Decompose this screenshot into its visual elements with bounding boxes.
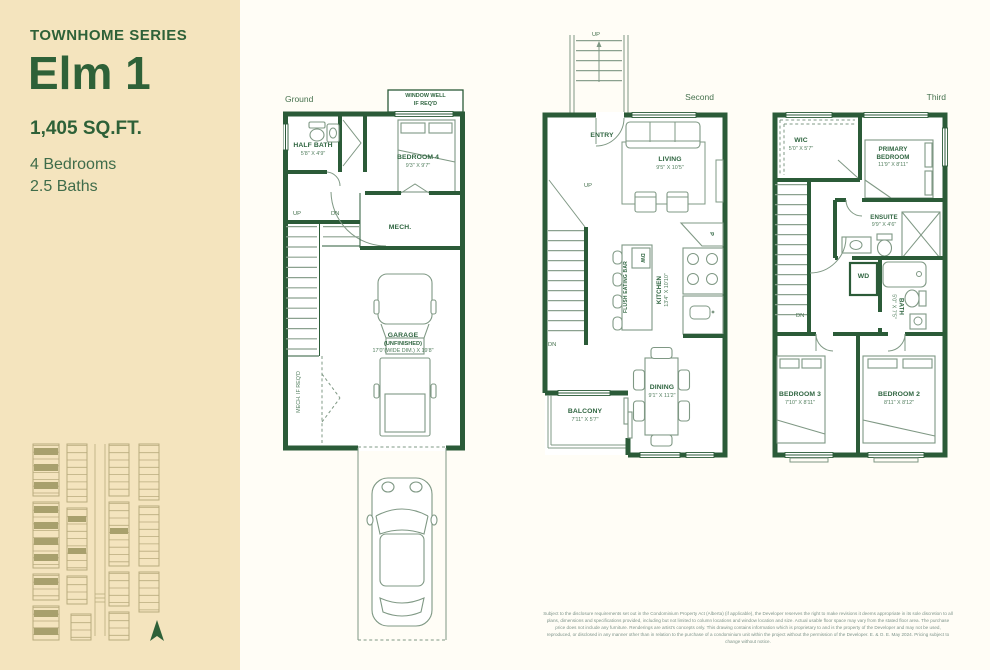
north-arrow-icon xyxy=(150,620,164,641)
room-label-primary-bedroom: PRIMARY BEDROOM 11'9" X 8'11" xyxy=(864,146,922,169)
sink-icon xyxy=(910,314,926,329)
entry-stairs-up-label: UP xyxy=(592,32,600,38)
room-label-half-bath: HALF BATH 5'8" X 4'9" xyxy=(287,142,339,158)
sofa-icon xyxy=(626,122,700,148)
stairs-dn-label: DN xyxy=(548,342,556,348)
room-label-ensuite: ENSUITE 9'9" X 4'6" xyxy=(862,214,906,229)
second-floor-plan: Second UP ENTRY LIVING 9'5" X 10'5" UP D… xyxy=(540,30,740,462)
room-label-wic: WIC 5'0" X 5'7" xyxy=(780,137,822,153)
armchair-icon xyxy=(635,192,656,212)
plan-area: 1,405 SQ.FT. xyxy=(30,118,142,140)
stairs-up-label: UP xyxy=(293,211,301,217)
plan-name: Elm 1 xyxy=(28,46,151,100)
sink-icon xyxy=(327,124,339,142)
mech-if-reqd-note: MECH. IF REQ'D xyxy=(296,352,306,432)
room-label-garage: GARAGE (UNFINISHED) 17'0"(WIDE DIM.) X 1… xyxy=(365,332,441,355)
legal-disclaimer: Subject to the disclosure requirements s… xyxy=(543,610,953,646)
floor-label-second: Second xyxy=(668,92,714,102)
room-label-entry: ENTRY xyxy=(580,132,624,141)
shower-icon xyxy=(902,212,940,258)
stove-icon xyxy=(683,248,723,294)
stairs-dn-label: DN xyxy=(331,211,339,217)
car-icon xyxy=(367,478,437,626)
room-label-balcony: BALCONY 7'11" X 5'7" xyxy=(556,408,614,424)
site-map xyxy=(25,438,165,653)
plan-baths: 2.5 Baths xyxy=(30,178,98,196)
room-label-living: LIVING 9'5" X 10'5" xyxy=(644,156,696,172)
kitchen-sink-icon xyxy=(683,296,723,334)
pantry-label: P xyxy=(706,229,714,239)
eating-bar-label: FLUSH EATING BAR xyxy=(623,245,631,329)
stairs-up-label: UP xyxy=(584,183,592,189)
series-label: TOWNHOME SERIES xyxy=(30,27,187,44)
third-floor-plan: Third WIC 5'0" X 5'7" PRIMARY BEDROOM 11… xyxy=(768,88,958,466)
ground-floor-plan: Ground WINDOW WELL IF REQ'D HALF BATH 5'… xyxy=(283,88,483,650)
room-label-bedroom4: BEDROOM 4 9'3" X 9'7" xyxy=(383,154,453,170)
plan-bedrooms: 4 Bedrooms xyxy=(30,156,116,174)
room-label-bedroom2: BEDROOM 2 8'11" X 8'12" xyxy=(864,391,934,407)
toilet-icon xyxy=(905,290,926,307)
floorplan-sheet: { "colors": { "wall_green": "#2b5b38", "… xyxy=(0,0,990,670)
room-label-dining: DINING 9'1" X 11'2" xyxy=(642,384,682,400)
room-label-bedroom3: BEDROOM 3 7'10" X 8'11" xyxy=(772,391,828,407)
bathtub-icon xyxy=(883,262,926,287)
stairs-dn-label: DN xyxy=(796,313,804,319)
floor-label-ground: Ground xyxy=(285,94,313,104)
floor-label-third: Third xyxy=(900,92,946,102)
room-label-bath: BATH 5'0" X 7'5" xyxy=(890,285,905,329)
room-label-mech: MECH. xyxy=(378,224,422,233)
ground-floor-drawing xyxy=(283,88,483,650)
window-well-note: WINDOW WELL IF REQ'D xyxy=(388,93,463,108)
toilet-icon xyxy=(877,234,892,256)
room-label-kitchen: KITCHEN 13'4" X 10'10" xyxy=(656,258,672,322)
toilet-icon xyxy=(309,122,325,141)
dishwasher-label: DW xyxy=(637,250,645,266)
laundry-label: WD xyxy=(851,273,876,282)
armchair-icon xyxy=(667,192,688,212)
sidebar: TOWNHOME SERIES Elm 1 1,405 SQ.FT. 4 Bed… xyxy=(0,0,240,670)
